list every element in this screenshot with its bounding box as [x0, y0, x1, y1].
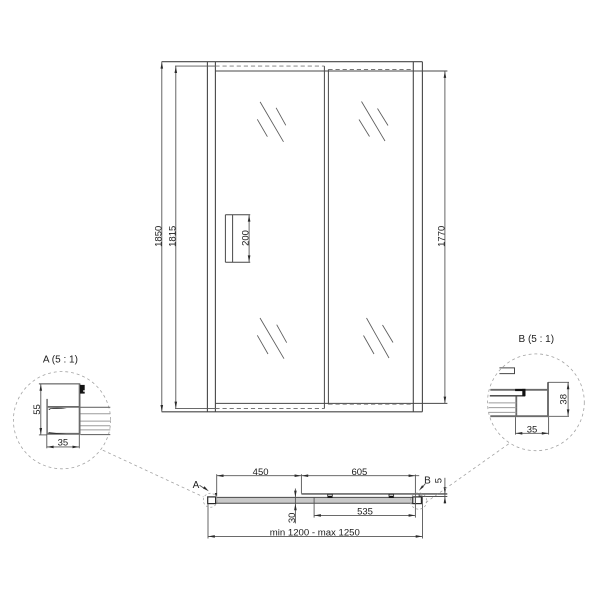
svg-text:A (5 : 1): A (5 : 1)	[43, 355, 78, 366]
svg-text:200: 200	[241, 230, 252, 246]
svg-text:B: B	[424, 475, 431, 486]
svg-text:55: 55	[32, 404, 43, 415]
svg-text:35: 35	[58, 438, 69, 449]
svg-text:30: 30	[287, 513, 298, 524]
svg-text:5: 5	[434, 478, 445, 483]
svg-text:1770: 1770	[437, 226, 448, 247]
svg-text:B (5 : 1): B (5 : 1)	[519, 334, 555, 345]
svg-text:1815: 1815	[167, 226, 178, 247]
svg-text:35: 35	[527, 424, 538, 435]
svg-text:1850: 1850	[153, 226, 164, 247]
svg-text:605: 605	[351, 467, 367, 478]
svg-text:min 1200 - max 1250: min 1200 - max 1250	[270, 528, 360, 539]
svg-text:A: A	[193, 480, 200, 491]
svg-text:535: 535	[357, 507, 373, 518]
svg-text:450: 450	[253, 467, 269, 478]
svg-text:38: 38	[558, 394, 569, 405]
